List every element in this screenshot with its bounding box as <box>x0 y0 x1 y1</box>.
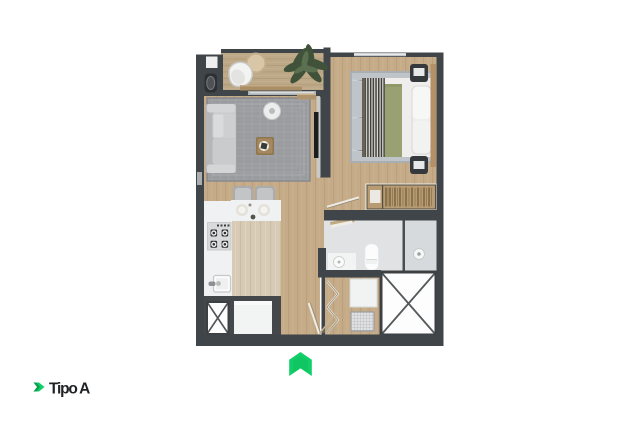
svg-text:Tipo A: Tipo A <box>49 381 90 398</box>
